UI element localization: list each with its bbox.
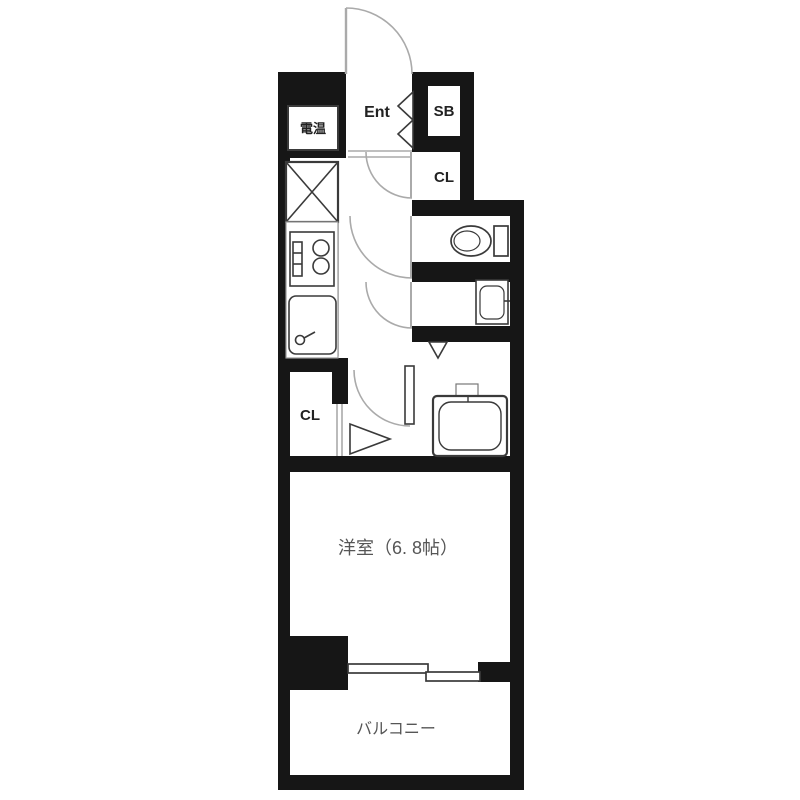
entrance-door-arc [346,8,412,74]
closet-lower-label: CL [300,407,320,424]
kitchen-sink [289,296,336,354]
balcony-label: バルコニー [356,721,436,738]
closet-upper-label: CL [434,169,454,186]
shoebox-bifold-triangle-1 [398,92,413,120]
main-room-label: 洋室（6. 8帖） [338,538,458,558]
washbasin [476,280,510,324]
refrigerator-space [286,162,338,222]
wall-bottom [278,775,524,790]
room-labels: 洋室（6. 8帖） バルコニー [338,538,458,738]
wall-wash-bath-separator [412,326,524,342]
wall-stub-closet [332,358,348,404]
toilet-door-arc [350,216,412,278]
wall-mainroom-top [278,456,524,472]
wall-toilet-top [412,200,524,216]
wall-window-right-segment [478,662,524,682]
bathtub [433,396,507,456]
fixtures [286,106,510,681]
closet-upper-door-arc [366,152,412,198]
mainroom-door-leaf [405,366,414,424]
mainroom-door-triangle [350,424,390,454]
floorplan-svg: Ent SB CL CL 電温 洋室（6. 8帖） バルコニー [0,0,800,800]
bathroom-door-triangle [429,342,447,358]
wall-right-outer [510,200,524,790]
washroom-door-arc [366,282,412,328]
wall-toilet-wash-separator [412,262,524,282]
shoe-box-label: SB [434,103,455,120]
wall-sb-cl-separator [425,136,474,152]
doors [337,8,412,456]
floorplan-page: Ent SB CL CL 電温 洋室（6. 8帖） バルコニー [0,0,800,800]
stove [290,232,334,286]
toilet [451,226,508,256]
mainroom-door-arc [354,370,410,426]
balcony-sliding-window [348,664,480,681]
entrance-label: Ent [364,104,390,121]
water-heater-label: 電温 [300,121,326,136]
pillar-bottom-left [278,636,348,690]
shoebox-bifold-triangle-2 [398,120,413,148]
